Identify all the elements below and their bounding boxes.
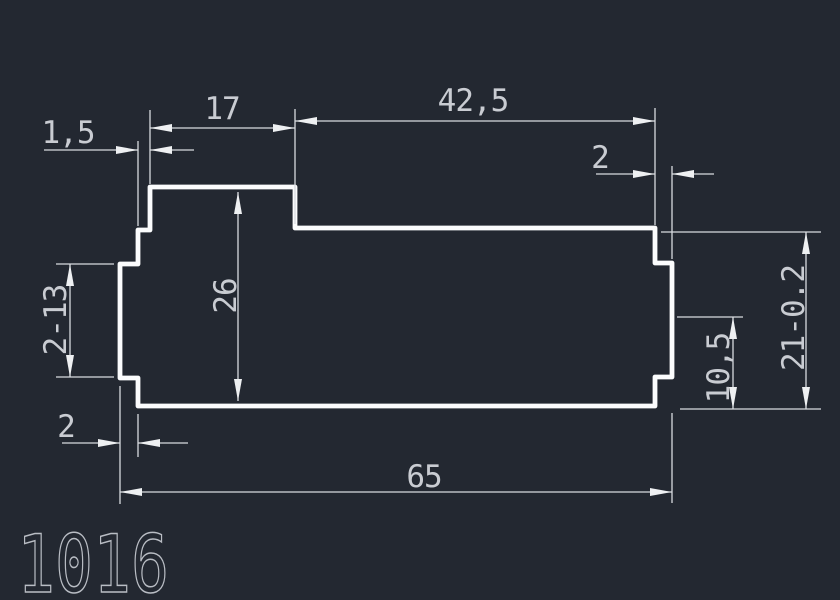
cad-drawing-canvas: 17 42,5 1,5 2 26 2-1 (0, 0, 840, 600)
dimension-text: 2 (57, 409, 75, 445)
dimension-text: 2-13 (38, 285, 74, 356)
technical-drawing: 17 42,5 1,5 2 26 2-1 (0, 0, 840, 600)
arrowhead-up (66, 264, 74, 286)
dimension-raised-top-width: 17 (150, 91, 295, 224)
arrowhead-left (150, 146, 172, 154)
arrowhead-right (98, 439, 120, 447)
arrowhead-left (672, 170, 694, 178)
dimension-right-lower-height: 10,5 (677, 317, 743, 409)
dimension-right-notch-depth: 2 (591, 140, 714, 259)
arrowhead-down (234, 379, 242, 401)
dimension-text: 42,5 (438, 83, 509, 119)
arrowhead-up (802, 232, 810, 254)
arrowhead-right (650, 488, 672, 496)
arrowhead-down (66, 355, 74, 377)
arrowhead-left (120, 488, 142, 496)
dimension-text: 17 (204, 91, 239, 127)
dimension-text: 1,5 (42, 115, 95, 151)
arrowhead-right (116, 146, 138, 154)
dimension-inner-height: 26 (208, 192, 244, 401)
arrowhead-right (633, 170, 655, 178)
arrowhead-right (633, 117, 655, 125)
dimension-text: 10,5 (701, 333, 737, 404)
arrowhead-down (802, 387, 810, 409)
dimension-text: 21-0.2 (776, 265, 812, 371)
dimension-text: 26 (208, 278, 244, 313)
arrowhead-up (234, 192, 242, 214)
profile-outline (120, 187, 672, 406)
arrowhead-left (138, 439, 160, 447)
dimension-right-height-tolerance: 21-0.2 (661, 232, 821, 409)
dimension-text: 65 (406, 459, 441, 495)
dimension-side-notch-height: 2-13 (38, 264, 114, 377)
dimension-text: 2 (591, 140, 609, 176)
dimension-left-notch-depth: 2 (57, 409, 188, 457)
arrowhead-left (295, 117, 317, 125)
part-number-label: 1016 (17, 518, 169, 600)
arrowhead-right (273, 124, 295, 132)
arrowhead-left (150, 124, 172, 132)
